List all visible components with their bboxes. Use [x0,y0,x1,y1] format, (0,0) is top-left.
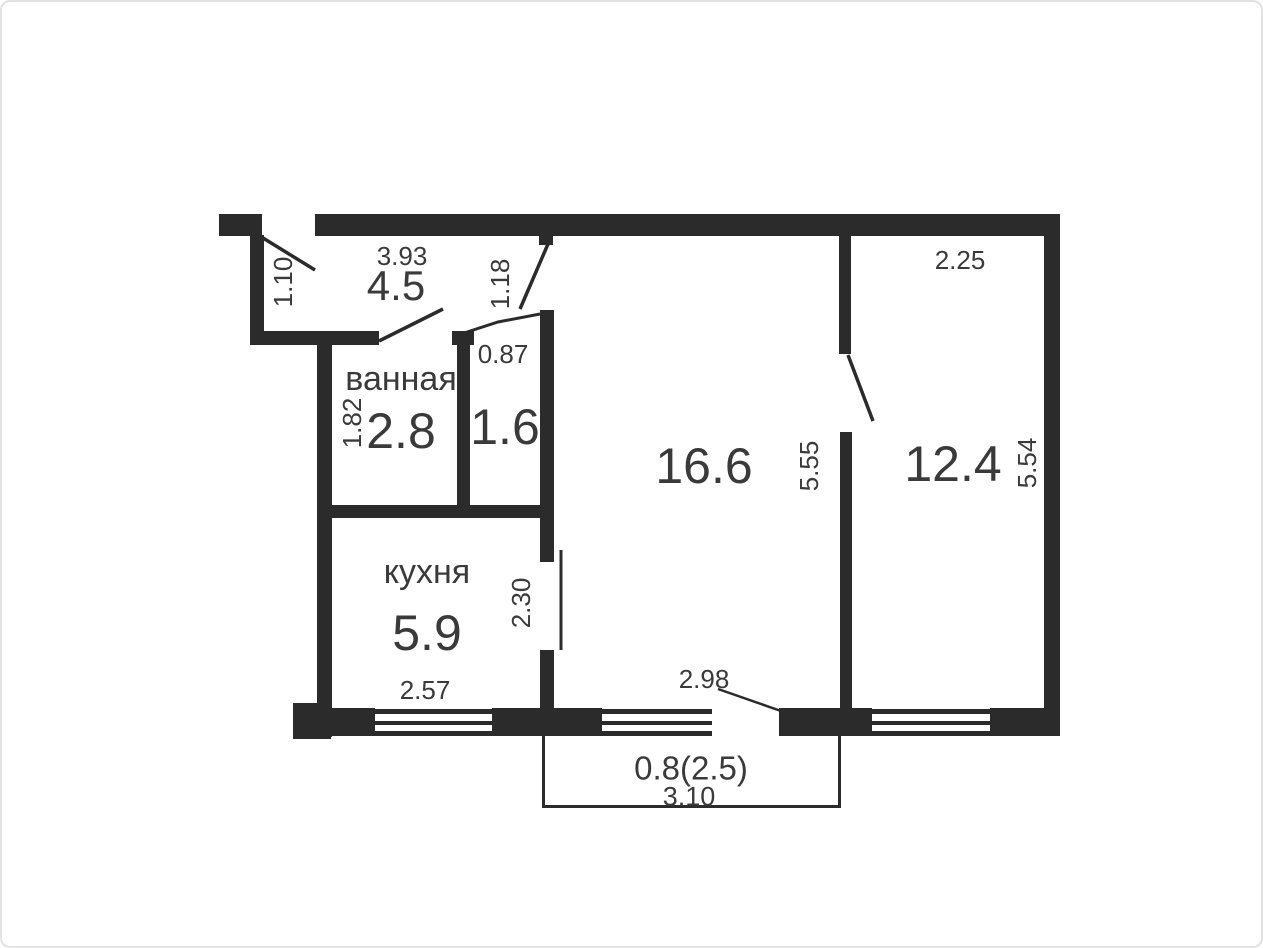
hall-door-dim: 1.18 [487,259,513,310]
door-lines-overlay [2,2,1263,948]
bedroom-side-dim: 5.54 [1014,438,1040,489]
door-swing-hall-living [520,244,548,309]
kitchen-name-label: кухня [384,555,470,589]
bathroom-side-dim: 1.82 [339,398,365,449]
storage-door-dim: 0.87 [478,341,529,367]
bedroom-area-label: 12.4 [904,439,1001,489]
door-leaf-storage [464,314,540,333]
kitchen-width-dim: 2.57 [400,677,451,703]
living-bottom-dim: 2.98 [679,666,730,692]
living-side-dim: 5.55 [796,441,822,492]
bathroom-name-label: ванная [345,362,456,396]
bathroom-area-label: 2.8 [366,406,436,456]
bedroom-top-dim: 2.25 [935,247,986,273]
kitchen-opening-dim: 2.30 [508,578,534,629]
floor-plan: 3.93 4.5 1.10 1.18 0.87 1.6 ванная 1.82 … [0,0,1263,948]
hall-area-label: 4.5 [367,265,425,307]
living-area-label: 16.6 [655,441,752,491]
balcony-area-label: 0.8(2.5) [634,752,748,785]
balcony-width-dim: 3.10 [663,784,716,811]
door-swing-bathroom [379,309,443,341]
storage-area-label: 1.6 [470,402,540,452]
door-swing-living-bedroom [848,355,873,421]
kitchen-area-label: 5.9 [392,608,462,658]
hall-side-dim: 1.10 [270,257,296,308]
